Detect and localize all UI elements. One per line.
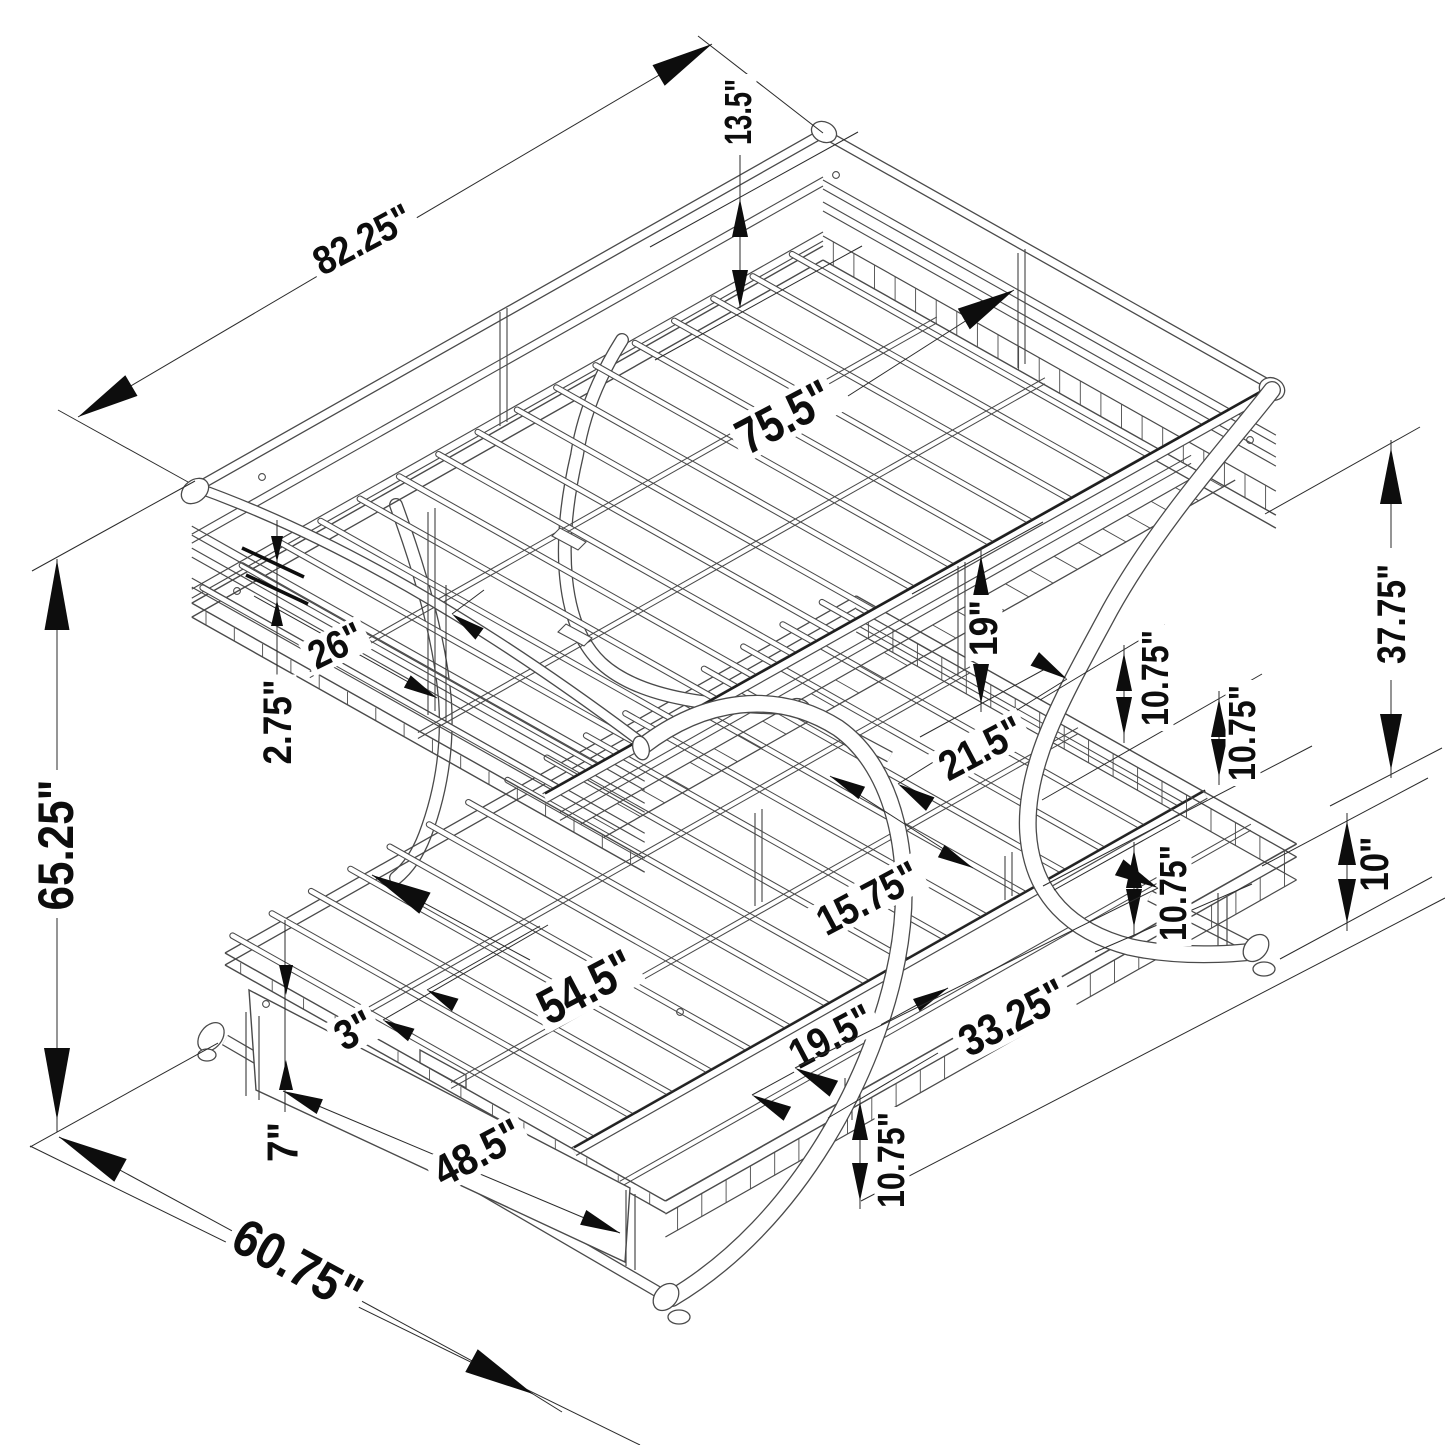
svg-text:2.75": 2.75" bbox=[256, 680, 300, 765]
svg-text:19": 19" bbox=[962, 600, 1006, 656]
svg-text:10.75": 10.75" bbox=[1135, 630, 1177, 726]
svg-text:10.75": 10.75" bbox=[1222, 685, 1264, 781]
svg-text:37.75": 37.75" bbox=[1370, 564, 1414, 664]
svg-text:10.75": 10.75" bbox=[871, 1112, 913, 1208]
svg-text:10": 10" bbox=[1353, 837, 1397, 892]
svg-text:7": 7" bbox=[259, 1122, 308, 1162]
svg-text:13.5": 13.5" bbox=[718, 79, 760, 145]
svg-text:65.25": 65.25" bbox=[28, 780, 84, 911]
svg-text:10.75": 10.75" bbox=[1153, 845, 1195, 941]
